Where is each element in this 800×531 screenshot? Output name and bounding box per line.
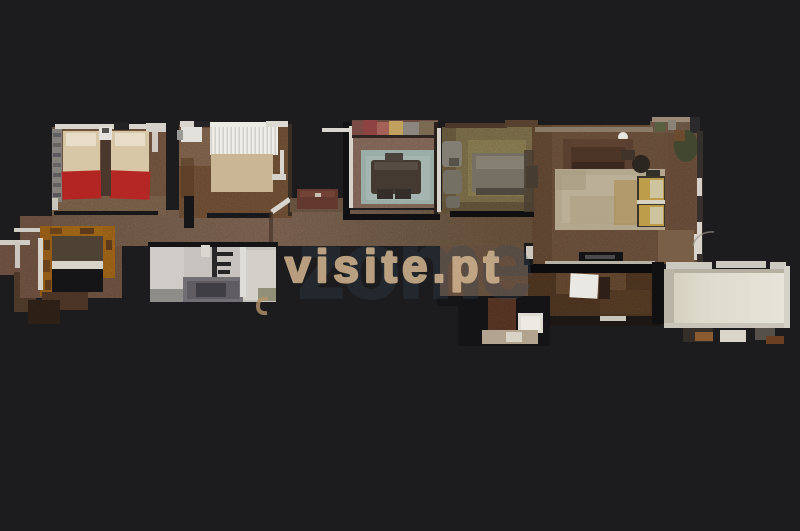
svg-text:visite.pt: visite.pt	[285, 240, 504, 292]
